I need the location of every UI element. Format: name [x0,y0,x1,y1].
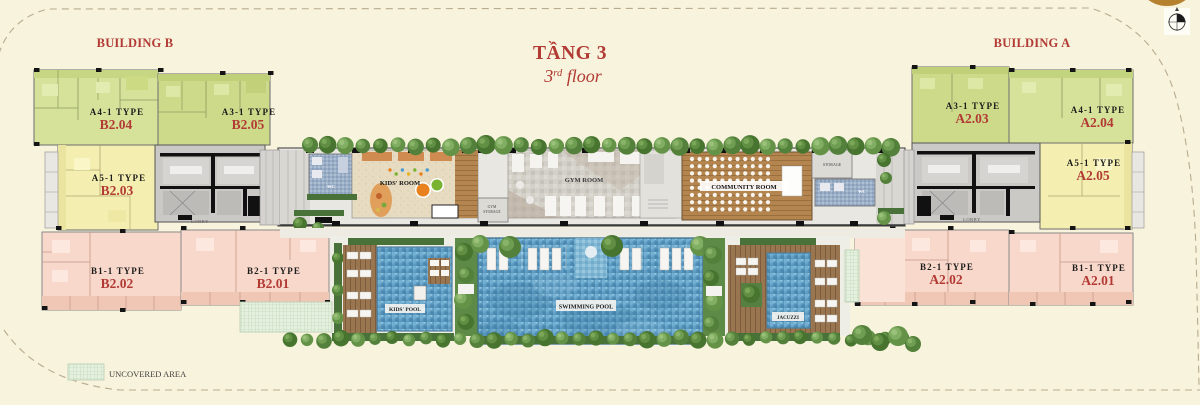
svg-text:STORAGE: STORAGE [483,210,501,214]
svg-text:B2.03: B2.03 [101,183,134,198]
svg-text:COMMUNITY ROOM: COMMUNITY ROOM [711,184,776,191]
svg-text:UNCOVERED AREA: UNCOVERED AREA [109,369,187,379]
svg-text:GYM ROOM: GYM ROOM [565,177,603,184]
svg-text:B2-1 TYPE: B2-1 TYPE [247,266,301,276]
svg-text:B2.02: B2.02 [101,276,134,291]
svg-text:JACUZZI: JACUZZI [777,316,799,321]
svg-text:3rd floor: 3rd floor [543,66,602,86]
svg-text:BUILDING B: BUILDING B [97,36,174,50]
svg-text:KIDS' POOL: KIDS' POOL [389,307,421,313]
svg-text:A2.01: A2.01 [1081,273,1115,288]
svg-text:KIDS' ROOM: KIDS' ROOM [380,180,420,187]
svg-text:A4-1 TYPE: A4-1 TYPE [1071,105,1126,115]
svg-text:B1-1 TYPE: B1-1 TYPE [91,266,145,276]
svg-text:A3-1 TYPE: A3-1 TYPE [946,101,1001,111]
svg-text:B1-1 TYPE: B1-1 TYPE [1072,263,1126,273]
svg-text:BUILDING A: BUILDING A [994,36,1071,50]
svg-text:B2.05: B2.05 [232,117,265,132]
svg-text:A4-1 TYPE: A4-1 TYPE [90,107,145,117]
svg-text:A2.05: A2.05 [1076,168,1110,183]
svg-text:A2.03: A2.03 [955,111,989,126]
svg-text:WC: WC [858,189,866,194]
svg-text:A2.04: A2.04 [1080,115,1114,130]
svg-text:B2-1 TYPE: B2-1 TYPE [920,262,974,272]
svg-text:WC: WC [327,184,335,189]
svg-text:A5-1 TYPE: A5-1 TYPE [92,173,147,183]
svg-text:TẦNG 3: TẦNG 3 [533,42,607,64]
svg-text:STORAGE: STORAGE [823,162,842,167]
svg-text:A3-1 TYPE: A3-1 TYPE [222,107,277,117]
svg-text:A2.02: A2.02 [929,272,963,287]
svg-text:B2.04: B2.04 [100,117,133,132]
svg-text:GYM: GYM [488,205,497,209]
svg-text:B2.01: B2.01 [257,276,290,291]
svg-text:A5-1 TYPE: A5-1 TYPE [1067,158,1122,168]
svg-text:SWIMMING POOL: SWIMMING POOL [559,304,614,311]
svg-text:LOBBY: LOBBY [191,219,209,224]
svg-text:LOBBY: LOBBY [963,217,981,222]
